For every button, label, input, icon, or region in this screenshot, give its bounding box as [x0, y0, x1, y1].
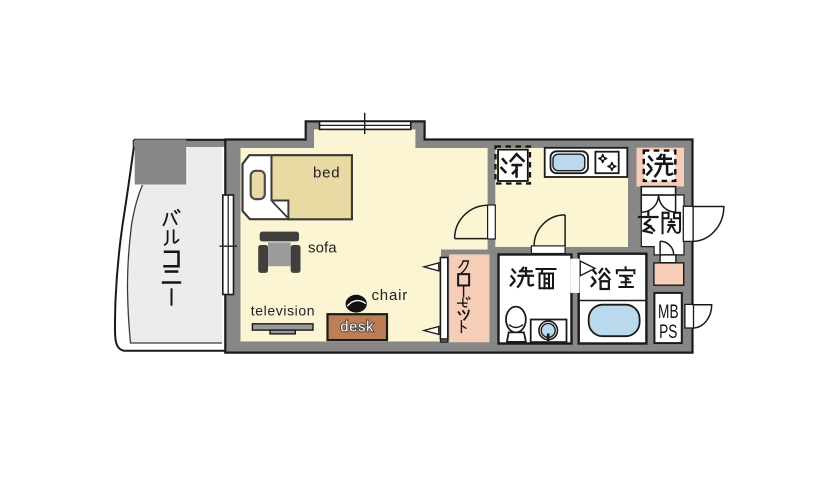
svg-text:chair: chair — [372, 287, 409, 304]
svg-text:desk: desk — [340, 320, 374, 336]
svg-text:television: television — [251, 302, 315, 318]
svg-text:bed: bed — [313, 165, 340, 182]
svg-text:sofa: sofa — [308, 240, 337, 257]
svg-text:PS: PS — [659, 321, 677, 343]
svg-text:MB: MB — [658, 301, 679, 323]
